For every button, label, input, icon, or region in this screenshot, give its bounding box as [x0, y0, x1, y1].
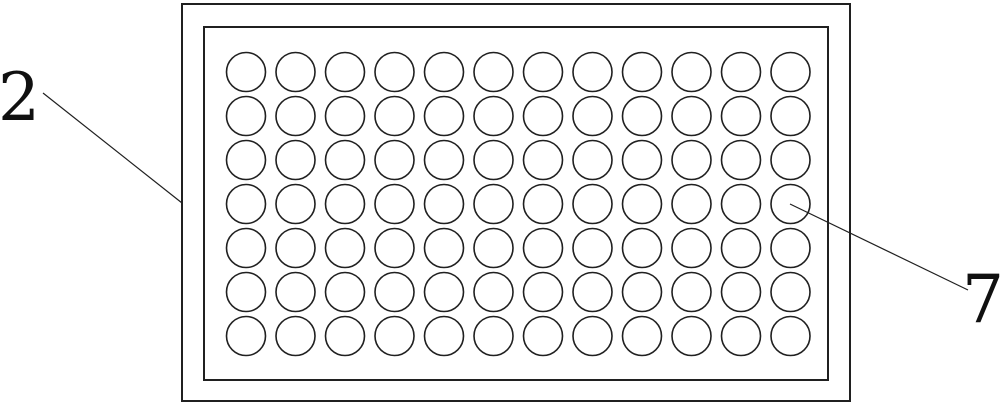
hole-circle	[276, 141, 315, 180]
hole-circle	[524, 141, 563, 180]
hole-circle	[771, 229, 810, 268]
hole-circle	[722, 141, 761, 180]
hole-circle	[326, 185, 365, 224]
hole-circle	[771, 141, 810, 180]
hole-circle	[524, 229, 563, 268]
leader-line-label-7	[790, 204, 968, 290]
hole-circle	[375, 53, 414, 92]
hole-circle	[573, 273, 612, 312]
hole-grid	[227, 53, 811, 356]
hole-circle	[623, 229, 662, 268]
hole-circle	[722, 273, 761, 312]
hole-circle	[672, 229, 711, 268]
hole-circle	[672, 97, 711, 136]
hole-circle	[771, 53, 810, 92]
hole-circle	[524, 53, 563, 92]
hole-circle	[425, 97, 464, 136]
hole-circle	[474, 273, 513, 312]
hole-circle	[227, 229, 266, 268]
hole-circle	[722, 53, 761, 92]
hole-circle	[276, 185, 315, 224]
hole-circle	[425, 185, 464, 224]
hole-circle	[425, 53, 464, 92]
patent-figure: 2 7	[0, 0, 1000, 408]
hole-circle	[623, 185, 662, 224]
hole-circle	[524, 317, 563, 356]
hole-circle	[326, 229, 365, 268]
hole-circle	[672, 185, 711, 224]
hole-circle	[573, 185, 612, 224]
hole-circle	[623, 53, 662, 92]
hole-circle	[623, 273, 662, 312]
hole-circle	[524, 97, 563, 136]
hole-circle	[425, 273, 464, 312]
hole-circle	[771, 273, 810, 312]
hole-circle	[722, 185, 761, 224]
reference-numeral-7: 7	[962, 261, 1000, 338]
hole-circle	[573, 141, 612, 180]
hole-circle	[474, 97, 513, 136]
hole-circle	[771, 97, 810, 136]
hole-circle	[276, 53, 315, 92]
hole-circle	[573, 317, 612, 356]
hole-circle	[375, 185, 414, 224]
hole-circle	[672, 317, 711, 356]
hole-circle	[227, 53, 266, 92]
hole-circle	[375, 317, 414, 356]
hole-circle	[573, 229, 612, 268]
hole-circle	[573, 97, 612, 136]
perforated-plate-diagram: 2 7	[0, 0, 1000, 408]
hole-circle	[722, 229, 761, 268]
hole-circle	[672, 273, 711, 312]
hole-circle	[474, 185, 513, 224]
hole-circle	[474, 229, 513, 268]
hole-circle	[425, 141, 464, 180]
hole-circle	[672, 141, 711, 180]
hole-circle	[326, 53, 365, 92]
hole-circle	[326, 317, 365, 356]
hole-circle	[623, 141, 662, 180]
hole-circle	[573, 53, 612, 92]
hole-circle	[375, 141, 414, 180]
hole-circle	[474, 317, 513, 356]
hole-circle	[425, 229, 464, 268]
hole-circle	[227, 317, 266, 356]
leader-line-label-2	[43, 93, 182, 203]
hole-circle	[425, 317, 464, 356]
hole-circle	[326, 97, 365, 136]
reference-numeral-2: 2	[0, 59, 40, 136]
hole-circle	[375, 273, 414, 312]
hole-circle	[722, 317, 761, 356]
hole-circle	[326, 273, 365, 312]
hole-circle	[227, 141, 266, 180]
hole-circle	[722, 97, 761, 136]
hole-circle	[623, 317, 662, 356]
hole-circle	[474, 141, 513, 180]
hole-circle	[326, 141, 365, 180]
hole-circle	[375, 97, 414, 136]
hole-circle	[524, 273, 563, 312]
hole-circle	[623, 97, 662, 136]
hole-circle	[276, 273, 315, 312]
hole-circle	[474, 53, 513, 92]
hole-circle	[227, 185, 266, 224]
hole-circle	[276, 97, 315, 136]
hole-circle	[672, 53, 711, 92]
hole-circle	[375, 229, 414, 268]
outer-plate-border	[182, 4, 850, 401]
hole-circle	[524, 185, 563, 224]
hole-circle	[227, 97, 266, 136]
hole-circle	[227, 273, 266, 312]
inner-plate-border	[204, 27, 828, 380]
hole-circle	[276, 229, 315, 268]
hole-circle	[276, 317, 315, 356]
hole-circle	[771, 317, 810, 356]
